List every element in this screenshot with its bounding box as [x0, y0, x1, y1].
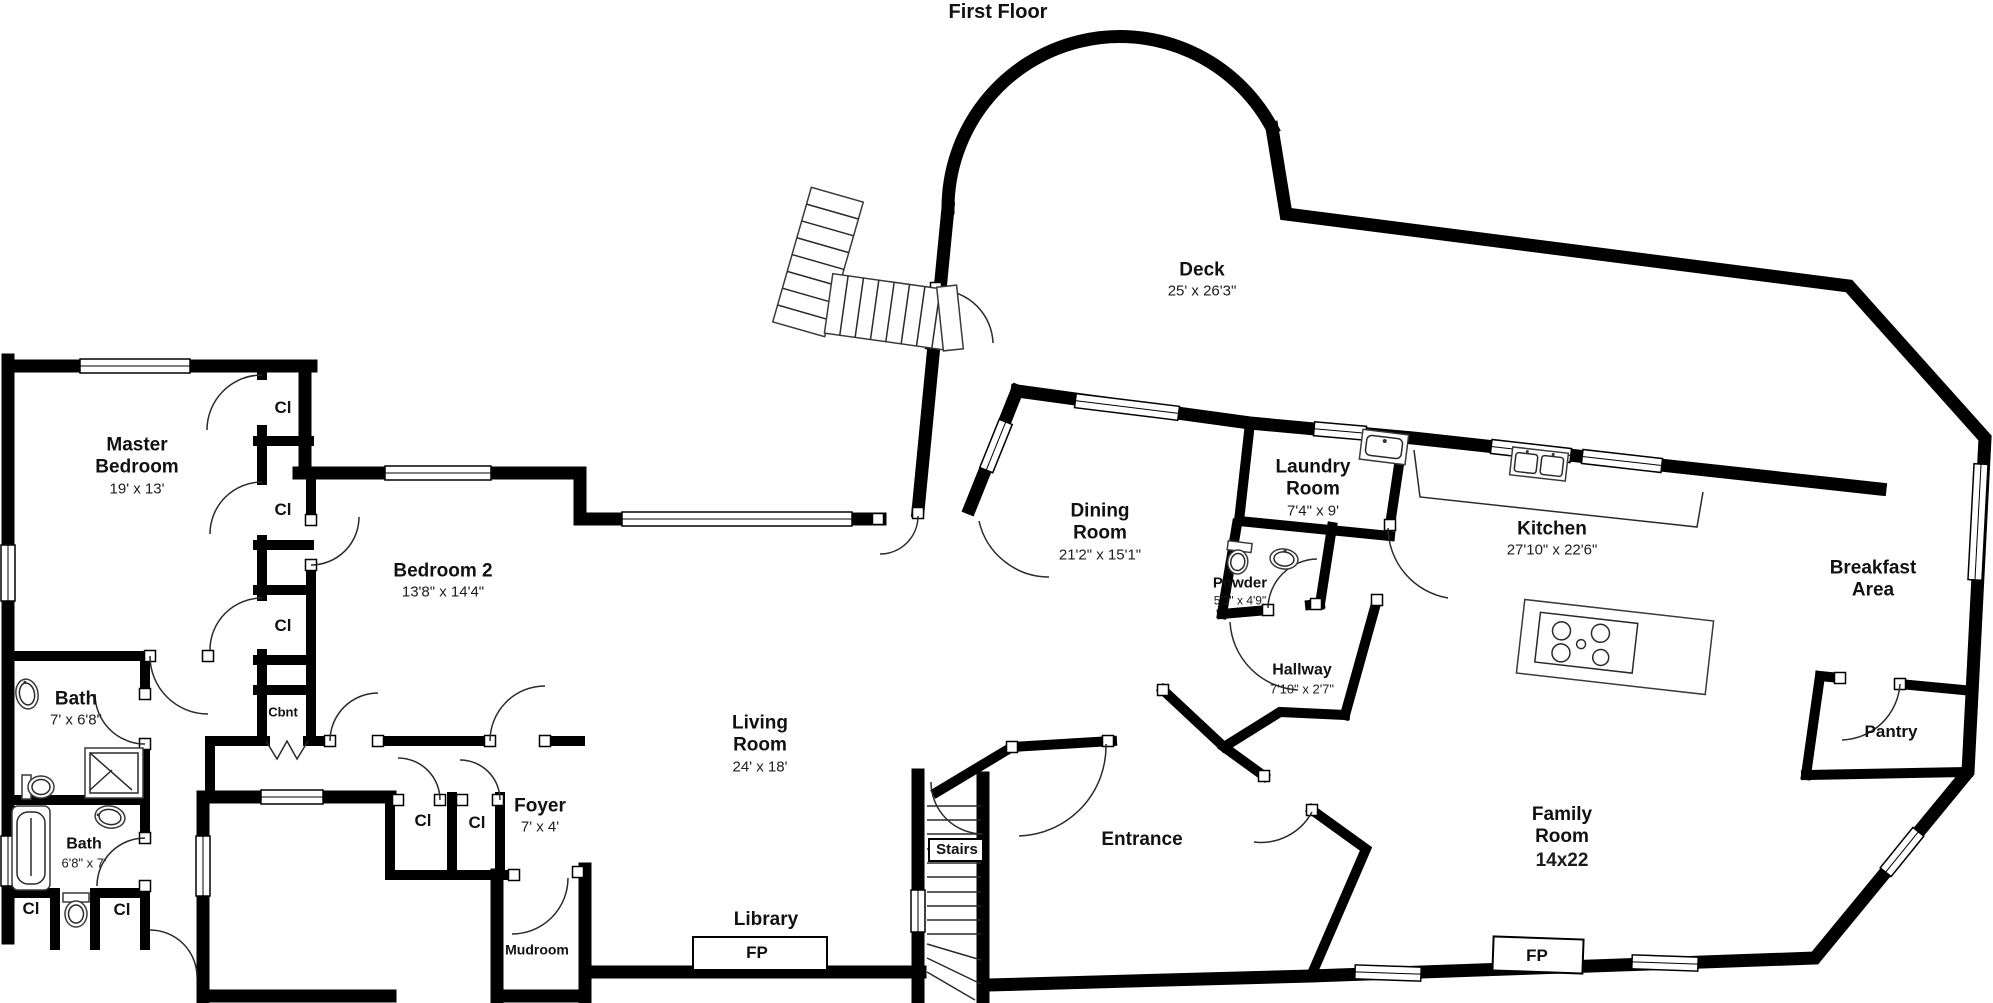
kitchen-sink-icon: [1510, 447, 1569, 481]
room-dims: 14x22: [1515, 850, 1610, 872]
room-name: Bath: [55, 688, 97, 709]
room-dims: 7'4" x 9': [1258, 502, 1368, 520]
room-dims: 7'10" x 2'7": [1270, 681, 1334, 696]
room-label-deck: Deck 25' x 26'3": [1168, 259, 1237, 300]
room-name: Foyer: [514, 795, 566, 816]
room-label-hallway: Hallway 7'10" x 2'7": [1270, 661, 1334, 696]
room-label-kitchen: Kitchen 27'10" x 22'6": [1507, 518, 1598, 559]
sink-icon: [1269, 547, 1299, 570]
fireplace-label-library: FP: [746, 943, 768, 963]
stairs-label: Stairs: [936, 841, 978, 859]
room-dims: 6'8" x 7': [62, 855, 107, 870]
room-label-bath-1: Bath 7' x 6'8": [50, 688, 102, 729]
room-name: Library: [734, 909, 798, 930]
room-dims: 27'10" x 22'6": [1507, 542, 1598, 560]
room-label-entrance: Entrance: [1101, 829, 1182, 851]
room-name: Hallway: [1272, 661, 1332, 678]
kitchen-island: [1516, 599, 1713, 694]
room-dims: 21'2" x 15'1": [1053, 546, 1148, 564]
room-dims: 25' x 26'3": [1168, 283, 1237, 301]
room-label-bath-2: Bath 6'8" x 7': [62, 835, 107, 870]
closet-label-7: Cl: [114, 900, 131, 920]
room-dims: 19' x 13': [72, 480, 202, 498]
deck-stairs: [773, 187, 964, 351]
room-dims: 24' x 18': [713, 758, 808, 776]
room-name: Living Room: [732, 712, 788, 755]
closet-label-5: Cl: [469, 813, 486, 833]
sink-icon: [14, 677, 41, 710]
sink-icon: [93, 804, 126, 831]
toilet-icon: [63, 893, 89, 927]
room-name: Deck: [1179, 259, 1224, 280]
room-name: Breakfast Area: [1830, 558, 1917, 601]
cabinet-label: Cbnt: [268, 704, 298, 719]
room-name: Kitchen: [1517, 518, 1587, 539]
room-label-family-room: Family Room 14x22: [1515, 804, 1610, 872]
room-label-bedroom-2: Bedroom 2 13'8" x 14'4": [393, 560, 492, 601]
floor-title: First Floor: [949, 1, 1048, 25]
room-name: Master Bedroom: [95, 434, 178, 477]
room-name: Bath: [66, 835, 102, 852]
floorplan-drawing: [0, 0, 1993, 1003]
closet-label-2: Cl: [275, 500, 292, 520]
room-label-powder: Powder 5'3" x 4'9": [1213, 575, 1267, 608]
closet-label-4: Cl: [415, 811, 432, 831]
exterior-walls: [8, 36, 1985, 1000]
toilet-icon: [22, 775, 54, 799]
room-label-dining-room: Dining Room 21'2" x 15'1": [1053, 500, 1148, 564]
room-name: Family Room: [1532, 804, 1592, 847]
room-name: Powder: [1213, 575, 1267, 592]
room-label-foyer: Foyer 7' x 4': [514, 795, 566, 836]
fireplace-label-family: FP: [1526, 946, 1548, 966]
interior-stairs: [927, 806, 983, 1000]
room-label-master-bedroom: Master Bedroom 19' x 13': [72, 434, 202, 498]
room-label-library: Library: [734, 909, 798, 931]
room-name: Entrance: [1101, 829, 1182, 850]
bathtub-icon: [12, 806, 50, 890]
closet-label-3: Cl: [275, 616, 292, 636]
room-name: Laundry Room: [1276, 456, 1351, 499]
room-dims: 5'3" x 4'9": [1213, 593, 1267, 607]
closet-label-1: Cl: [275, 398, 292, 418]
room-dims: 7' x 4': [514, 819, 566, 837]
closet-label-6: Cl: [23, 899, 40, 919]
shower-icon: [85, 748, 143, 798]
room-name: Dining Room: [1070, 500, 1129, 543]
room-label-laundry-room: Laundry Room 7'4" x 9': [1258, 456, 1368, 520]
room-label-breakfast-area: Breakfast Area: [1811, 558, 1936, 603]
room-name: Pantry: [1865, 722, 1918, 741]
room-dims: 7' x 6'8": [50, 712, 102, 730]
floorplan: First Floor Deck 25' x 26'3" Master Bedr…: [0, 0, 1993, 1003]
room-label-living-room: Living Room 24' x 18': [713, 712, 808, 776]
room-label-pantry: Pantry: [1865, 722, 1918, 742]
room-dims: 13'8" x 14'4": [393, 584, 492, 602]
room-name: Bedroom 2: [393, 560, 492, 581]
room-name: Mudroom: [505, 942, 569, 958]
room-label-mudroom: Mudroom: [505, 942, 569, 959]
